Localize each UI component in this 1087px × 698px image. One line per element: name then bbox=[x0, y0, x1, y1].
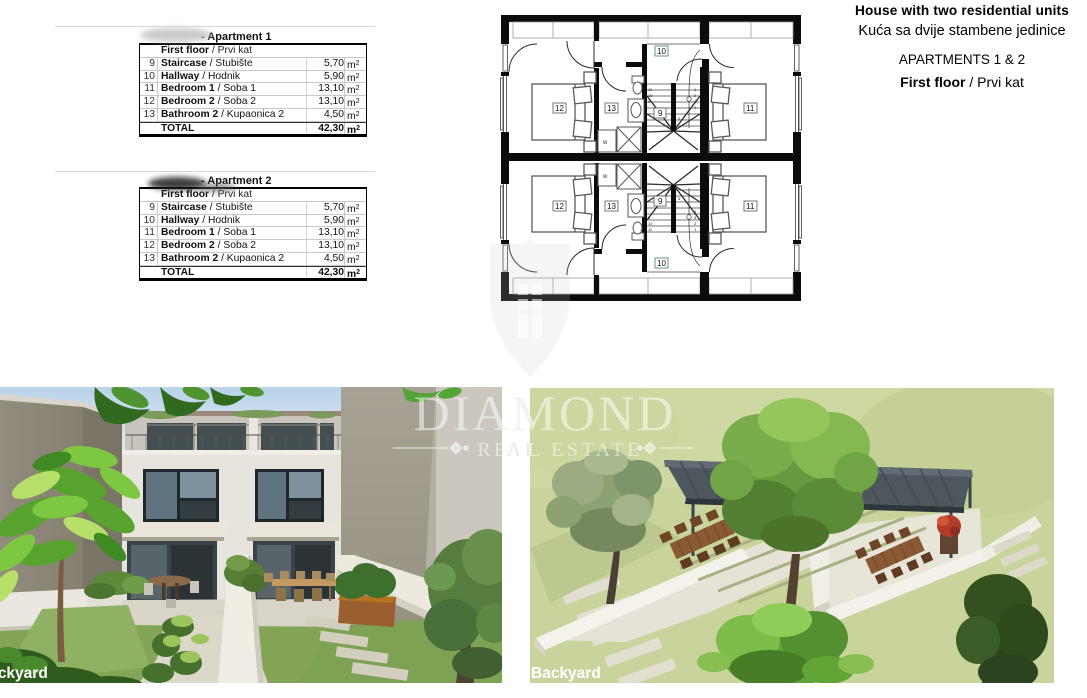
svg-text:13: 13 bbox=[607, 202, 616, 211]
svg-text:12: 12 bbox=[555, 202, 564, 211]
svg-text:10: 10 bbox=[648, 93, 653, 98]
svg-text:w: w bbox=[602, 140, 608, 146]
svg-text:Backyard: Backyard bbox=[531, 665, 601, 682]
svg-text:9: 9 bbox=[658, 197, 663, 206]
svg-text:10: 10 bbox=[657, 259, 666, 268]
svg-text:11: 11 bbox=[746, 104, 755, 113]
svg-text:12: 12 bbox=[555, 104, 564, 113]
svg-text:10: 10 bbox=[648, 221, 653, 226]
svg-text:11: 11 bbox=[746, 202, 755, 211]
svg-text:10: 10 bbox=[657, 47, 666, 56]
svg-text:13: 13 bbox=[607, 104, 616, 113]
svg-text:Backyard: Backyard bbox=[0, 665, 48, 682]
svg-text:9: 9 bbox=[658, 109, 663, 118]
svg-text:w: w bbox=[602, 174, 608, 180]
